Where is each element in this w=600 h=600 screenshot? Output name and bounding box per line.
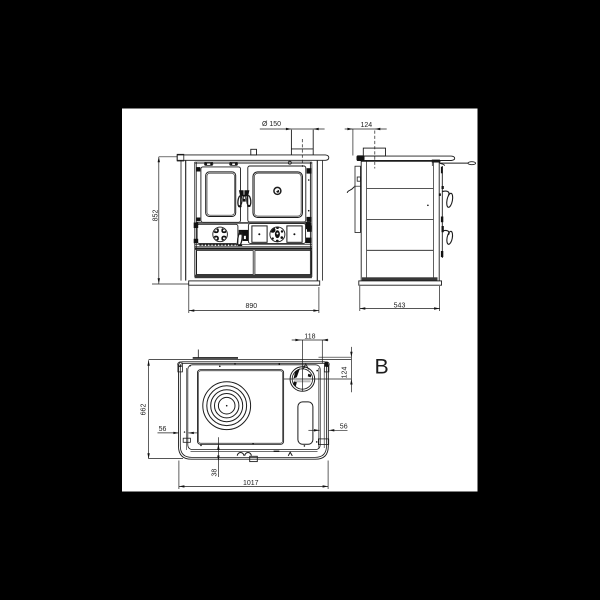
svg-text:543: 543: [394, 303, 406, 310]
svg-text:38: 38: [211, 469, 218, 477]
svg-text:Ø 150: Ø 150: [262, 121, 281, 128]
svg-text:56: 56: [159, 426, 167, 433]
svg-text:124: 124: [342, 367, 349, 379]
svg-text:662: 662: [141, 404, 148, 416]
svg-text:56: 56: [340, 423, 348, 430]
svg-text:B: B: [375, 354, 389, 378]
svg-text:890: 890: [245, 303, 257, 310]
svg-text:124: 124: [360, 122, 372, 129]
svg-text:852: 852: [152, 210, 159, 222]
svg-text:1017: 1017: [243, 480, 259, 487]
svg-text:118: 118: [304, 334, 315, 341]
